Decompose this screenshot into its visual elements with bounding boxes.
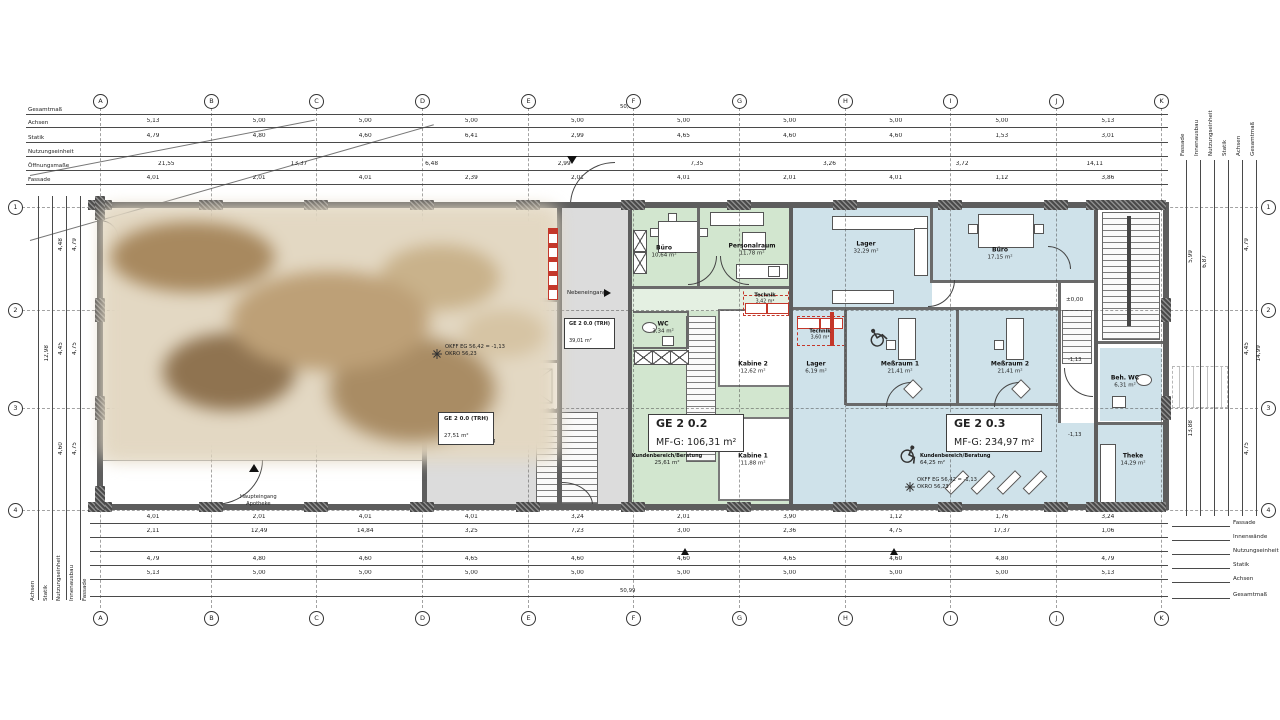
level-minus-label: -1,13 <box>1068 357 1081 364</box>
grid-bubble-right-3: 3 <box>1261 401 1276 416</box>
room-label-behwc: Beh. WC6,31 m² <box>1111 375 1139 390</box>
red-panel <box>797 318 820 329</box>
red-riser-strip <box>548 228 558 300</box>
grid-bubble-bottom-e: E <box>521 611 536 626</box>
locker <box>634 350 653 365</box>
column <box>833 200 857 210</box>
chair <box>994 340 1004 350</box>
dim-line-right <box>1256 160 1257 516</box>
desk-messraum2 <box>1006 318 1024 360</box>
column <box>938 200 962 210</box>
chain-label-gesamt-top: Gesamtmaß <box>28 107 62 113</box>
dim-left-inner-1: 4,48 <box>58 238 64 251</box>
grid-bubble-top-h: H <box>838 94 853 109</box>
axis-line-i <box>950 108 951 608</box>
room-label-buero-blue: Büro17,15 m² <box>987 247 1012 262</box>
dim-right-rows-3: 4,75 <box>1244 442 1250 455</box>
column <box>516 502 540 512</box>
nebeneingang-top-label: Nebeneingang <box>567 290 606 298</box>
chain-label-fassade-tr: Fassade <box>1180 98 1186 156</box>
sink <box>768 266 780 277</box>
dim-line-achsen-top <box>26 127 1168 128</box>
room-label-technik-blue: Technik3,60 m² <box>809 329 830 342</box>
level-star-icon <box>905 477 915 496</box>
dim-line-right <box>1186 160 1187 516</box>
dim-right-inner-2: 6,87 <box>1202 255 1208 268</box>
dim-right-total: 14,99 <box>1256 345 1262 362</box>
door-arc-entrance-top <box>570 162 615 205</box>
wall-right-theke-top <box>1096 422 1163 425</box>
level-note-1: OKFF EG 56,42 = -1,13 OKRO 56,23 <box>445 344 505 359</box>
dim-row-innen-bottom: 2,1112,4914,843,257,233,002,364,7517,371… <box>100 528 1161 534</box>
shelf-lager <box>832 290 894 304</box>
wall-outer-right <box>1163 202 1169 510</box>
desk-messraum1 <box>898 318 916 360</box>
grid-bubble-bottom-d: D <box>415 611 430 626</box>
floorplan-canvas: { "colors": { "unit_green": "#d2e6cf", "… <box>0 0 1280 720</box>
level-star-icon <box>432 344 442 363</box>
unit-box-ge202: GE 2 0.2 MF-G: 106,31 m² <box>648 414 744 452</box>
dim-line-left <box>52 196 53 600</box>
wall-corridorv-left <box>1058 283 1061 423</box>
chair <box>650 228 659 237</box>
level-zero-label: ±0,00 <box>1066 297 1083 305</box>
dim-line-statik-top <box>26 142 1168 143</box>
column <box>727 200 751 210</box>
dim-line-statik-bottom <box>90 565 1168 566</box>
room-label-lager2: Lager6,19 m² <box>805 361 827 376</box>
wall-blue-right <box>1094 208 1098 505</box>
dim-left-rows-3: 4,75 <box>72 442 78 455</box>
grid-bubble-top-f: F <box>626 94 641 109</box>
dim-row-axes-bottom: 5,135,005,005,005,005,005,005,005,005,13 <box>100 570 1161 576</box>
entrance-arrow-top <box>567 156 577 164</box>
grid-bubble-top-g: G <box>732 94 747 109</box>
grid-bubble-right-2: 2 <box>1261 303 1276 318</box>
grid-bubble-bottom-i: I <box>943 611 958 626</box>
room-label-personalraum: Personalraum11,78 m² <box>728 243 775 258</box>
shelf <box>633 230 647 252</box>
grid-bubble-left-1: 1 <box>8 200 23 215</box>
leader-br <box>1172 540 1230 541</box>
entrance-marker <box>681 548 689 555</box>
column <box>1044 200 1068 210</box>
room-label-messraum2: Meßraum 221,41 m² <box>991 361 1029 376</box>
wall-right-landing-top <box>1096 341 1163 344</box>
column <box>410 502 434 512</box>
chain-label-statik-top: Statik <box>28 135 44 141</box>
dim-left-rows-2: 4,75 <box>72 342 78 355</box>
column <box>1161 396 1171 420</box>
dim-left-rows-1: 4,79 <box>72 238 78 251</box>
chain-label-nutzung-tr: Nutzungseinheit <box>1208 98 1214 156</box>
locker <box>670 350 689 365</box>
room-label-wc: WC3,34 m² <box>652 321 674 336</box>
grid-bubble-top-d: D <box>415 94 430 109</box>
entrance-marker <box>890 548 898 555</box>
column <box>938 502 962 512</box>
wall-green-hall-top <box>631 286 789 289</box>
chain-label-nutzung-br: Nutzungseinheit <box>1233 548 1279 554</box>
wall-wc-right <box>687 311 689 349</box>
dim-line-left <box>38 196 39 600</box>
column <box>833 502 857 512</box>
grid-bubble-bottom-a: A <box>93 611 108 626</box>
dim-row-statik-top: 4,794,804,606,412,994,654,604,601,533,01 <box>100 133 1161 139</box>
shelf <box>633 252 647 274</box>
room-label-theke: Theke14,29 m² <box>1120 453 1145 468</box>
sink-wc <box>662 336 674 346</box>
unit-box-ge203: GE 2 0.3 MF-G: 234,97 m² <box>946 414 1042 452</box>
dim-row-axes-top: 5,135,005,005,005,005,005,005,005,005,13 <box>100 118 1161 124</box>
chain-label-fassade-top: Fassade <box>28 177 50 183</box>
dim-line-nutzung-bottom <box>90 551 1168 552</box>
dim-line-achsen-bottom <box>90 579 1168 580</box>
axis-line-j <box>1056 108 1057 608</box>
dim-line-right <box>1242 160 1243 516</box>
chain-label-fassade-bl: Fassade <box>82 543 88 601</box>
grid-bubble-bottom-k: K <box>1154 611 1169 626</box>
haupteingang-label: Haupteingang Apotheke <box>240 494 277 509</box>
dim-line-right <box>1200 160 1201 516</box>
grid-bubble-bottom-g: G <box>732 611 747 626</box>
room-label-kunden-blue: Kundenbereich/Beratung64,25 m² <box>920 453 990 467</box>
chain-label-achsen-bl: Achsen <box>30 543 36 601</box>
room-label-kunden-green: Kundenbereich/Beratung25,61 m² <box>632 453 702 467</box>
wall-wc-top <box>633 311 689 313</box>
column <box>621 502 645 512</box>
leader-br <box>1172 526 1230 527</box>
chair <box>668 213 677 222</box>
dim-right-inner-3: 13,88 <box>1188 420 1194 437</box>
chain-label-oeffnung-top: Öffnungsmaße <box>28 163 69 169</box>
room-label-kabine2: Kabine 212,62 m² <box>738 361 768 376</box>
dim-right-rows-2: 4,45 <box>1244 342 1250 355</box>
dim-left-total: 12,98 <box>44 345 50 362</box>
entrance-arrow-main <box>249 464 259 472</box>
chain-label-nutzung-bl: Nutzungseinheit <box>56 543 62 601</box>
column <box>727 502 751 512</box>
column <box>1086 502 1166 512</box>
leader-br <box>1172 598 1230 599</box>
column <box>1086 200 1166 210</box>
locker <box>652 350 671 365</box>
wall-mess1-2 <box>956 310 959 405</box>
grid-bubble-bottom-b: B <box>204 611 219 626</box>
wall-green-blue <box>789 208 793 505</box>
leader-line <box>30 120 315 176</box>
column <box>199 502 223 512</box>
room-label-messraum1: Meßraum 121,41 m² <box>881 361 919 376</box>
dim-row-statik-bottom: 4,794,804,604,654,604,604,654,604,804,79 <box>100 556 1161 562</box>
room-label-kabine1: Kabine 111,88 m² <box>738 453 768 468</box>
dim-line-left <box>80 196 81 600</box>
level-note-2: OKFF EG 56,42 = -1,13 OKRO 56,23 <box>917 477 977 492</box>
column <box>1161 298 1171 322</box>
axis-line-h <box>845 108 846 608</box>
dim-right-rows-1: 4,79 <box>1244 238 1250 251</box>
stairs-topright <box>1102 212 1160 340</box>
chain-label-achsen-tr: Achsen <box>1236 98 1242 156</box>
cabinet-personalraum <box>710 212 764 226</box>
dim-line-right <box>1228 160 1229 516</box>
dim-left-inner-3: 4,60 <box>58 442 64 455</box>
chain-label-statik-bl: Statik <box>43 543 49 601</box>
dim-row-oeffnung-top: 21,5513,376,482,997,353,263,7214,11 <box>100 161 1161 167</box>
wall-blue-lager-buero <box>930 208 933 283</box>
grid-bubble-right-1: 1 <box>1261 200 1276 215</box>
dim-line-fassade-bottom <box>90 523 1168 524</box>
dim-line-right <box>1214 160 1215 516</box>
leader-br <box>1172 554 1230 555</box>
dim-line-gesamt-bottom <box>90 596 1168 597</box>
grid-bubble-bottom-h: H <box>838 611 853 626</box>
grid-bubble-right-4: 4 <box>1261 503 1276 518</box>
dim-line-nutzung-top <box>26 156 1168 157</box>
grid-bubble-bottom-f: F <box>626 611 641 626</box>
dim-row-fassade-top: 4,012,014,012,392,014,012,014,011,123,86 <box>100 175 1161 181</box>
counter-theke <box>1100 444 1116 504</box>
chain-label-statik-tr: Statik <box>1222 98 1228 156</box>
chair <box>699 228 708 237</box>
grid-bubble-left-2: 2 <box>8 303 23 318</box>
dim-row-fassade-bottom: 4,012,014,014,013,242,013,901,121,763,24 <box>100 514 1161 520</box>
leader-br <box>1172 568 1230 569</box>
room-label-lager1: Lager32,29 m² <box>853 241 878 256</box>
chain-label-innen-bl: Innenausbau <box>69 543 75 601</box>
shelf-lager <box>914 228 928 276</box>
wall-wc-bottom <box>633 347 689 349</box>
column <box>304 502 328 512</box>
nebeneingang-top-arrow <box>604 289 611 297</box>
grid-bubble-top-j: J <box>1049 94 1064 109</box>
chain-label-statik-br: Statik <box>1233 562 1249 568</box>
axis-line-g <box>739 108 740 608</box>
chain-label-nutzung-top: Nutzungseinheit <box>28 149 74 155</box>
column <box>621 200 645 210</box>
grid-bubble-bottom-j: J <box>1049 611 1064 626</box>
sink-behwc <box>1112 396 1126 408</box>
chain-label-gesamt-tr: Gesamtmaß <box>1250 98 1256 156</box>
chain-label-fassade-br: Fassade <box>1233 520 1255 526</box>
chain-label-innenausbau-tr: Innenausbau <box>1194 98 1200 156</box>
grid-bubble-top-k: K <box>1154 94 1169 109</box>
dim-line-left <box>66 196 67 600</box>
chain-label-gesamt-br: Gesamtmaß <box>1233 592 1267 598</box>
chain-label-achsen-br: Achsen <box>1233 576 1253 582</box>
grid-bubble-left-3: 3 <box>8 401 23 416</box>
chain-label-innenwaende-br: Innenwände <box>1233 534 1267 540</box>
axis-line-k <box>1161 108 1162 608</box>
unit-box-trh1: GE 2 0.0 (TRH) 39,01 m² <box>564 318 615 349</box>
dim-line-innen-bottom <box>90 537 1168 538</box>
column <box>95 486 105 510</box>
room-label-buero-green: Büro10,64 m² <box>651 245 676 260</box>
column <box>1044 502 1068 512</box>
chain-label-achsen-top: Achsen <box>28 120 48 126</box>
dim-right-inner-1: 5,99 <box>1188 250 1194 263</box>
axis-line-f <box>633 108 634 608</box>
desk-buero-blue <box>978 214 1034 248</box>
unit-box-trh2: GE 2 0.0 (TRH) 27,51 m² <box>438 412 494 445</box>
grid-bubble-top-i: I <box>943 94 958 109</box>
grid-bubble-top-a: A <box>93 94 108 109</box>
chair <box>1034 224 1044 234</box>
dim-line-gesamt-top <box>26 114 1168 115</box>
wall-mess-bottom <box>846 403 1058 406</box>
room-label-technik-green: Technik3,42 m² <box>754 293 775 306</box>
leader-br <box>1172 582 1230 583</box>
dim-left-inner-2: 4,45 <box>58 342 64 355</box>
grid-bubble-top-e: E <box>521 94 536 109</box>
level-minus-label-2: -1,13 <box>1068 432 1081 439</box>
stairs-blue-small <box>1062 310 1092 364</box>
chair <box>968 224 978 234</box>
grid-bubble-top-b: B <box>204 94 219 109</box>
grid-bubble-left-4: 4 <box>8 503 23 518</box>
grid-bubble-top-c: C <box>309 94 324 109</box>
grid-bubble-bottom-c: C <box>309 611 324 626</box>
